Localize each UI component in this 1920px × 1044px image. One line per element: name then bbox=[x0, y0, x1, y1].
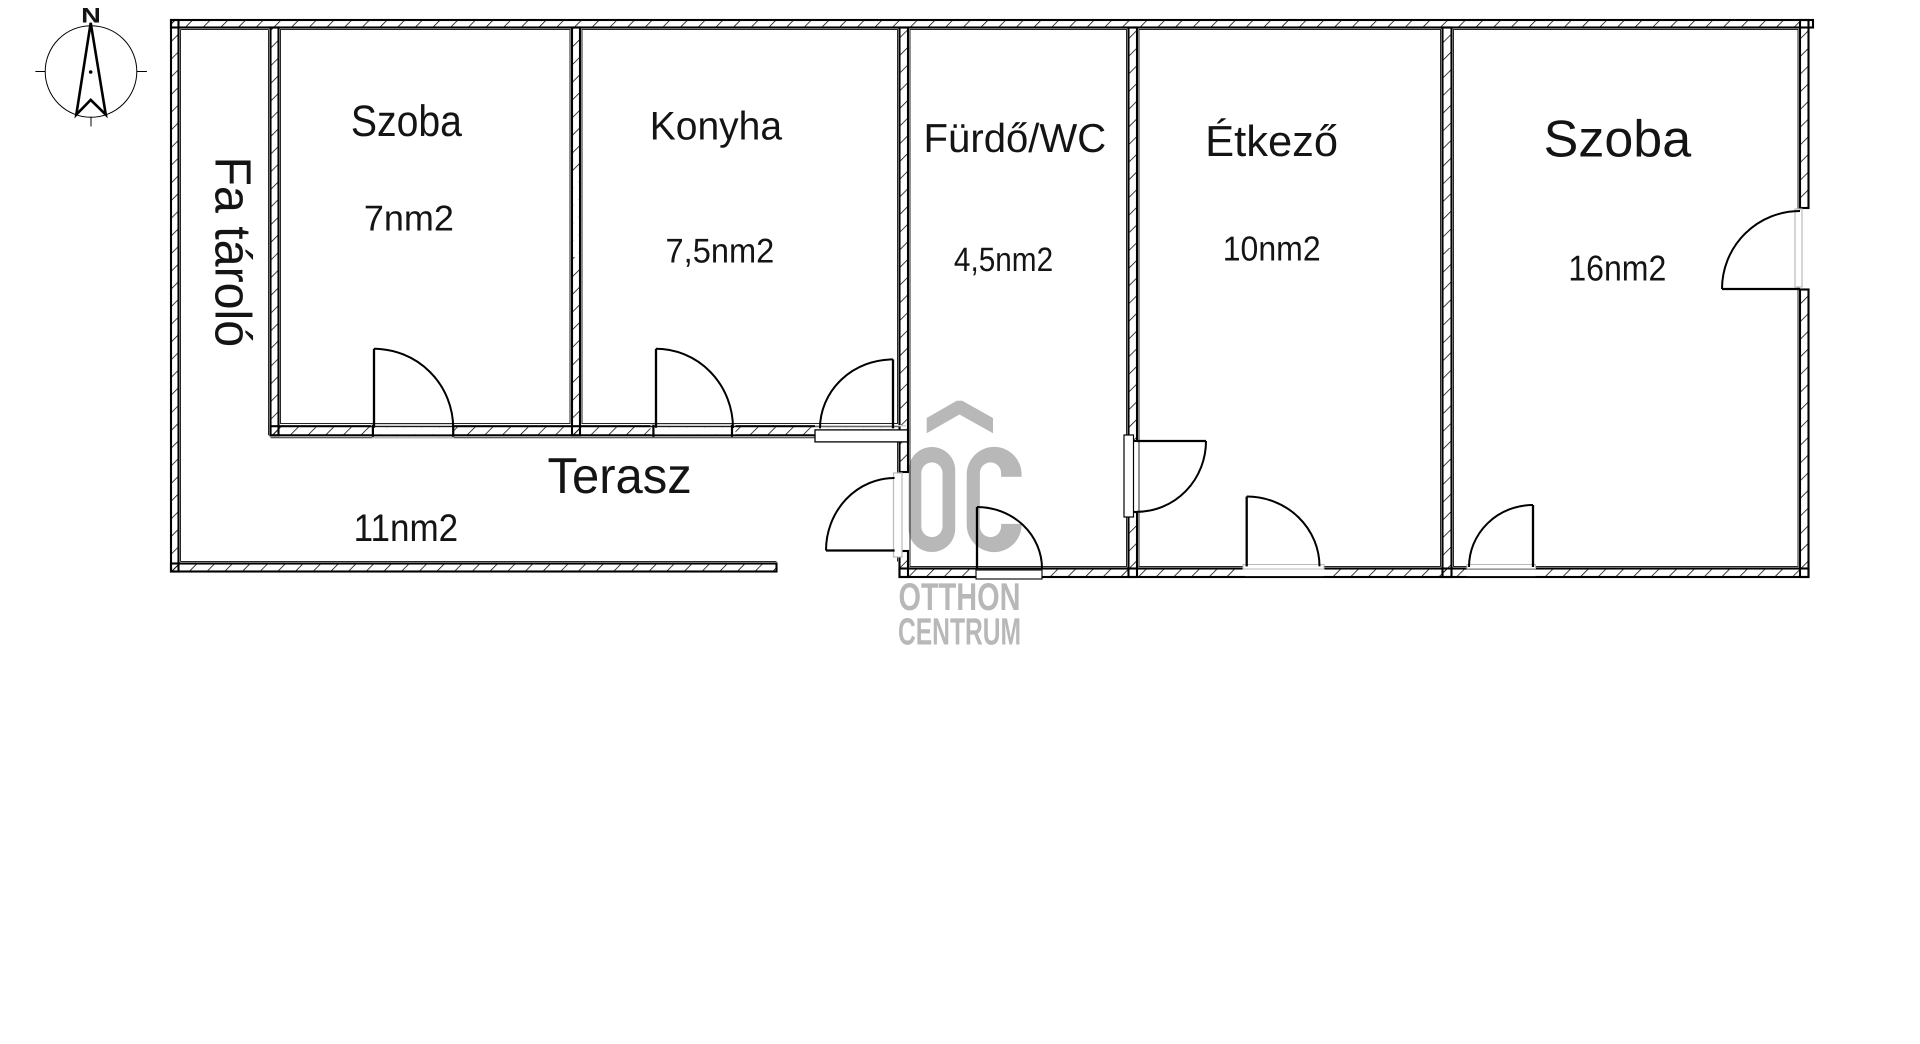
svg-text:16nm2: 16nm2 bbox=[1568, 248, 1666, 289]
svg-text:7,5nm2: 7,5nm2 bbox=[666, 232, 775, 270]
svg-text:Fa tároló: Fa tároló bbox=[205, 157, 262, 348]
svg-text:Szoba: Szoba bbox=[351, 97, 463, 146]
svg-text:7nm2: 7nm2 bbox=[364, 198, 454, 239]
svg-text:Szoba: Szoba bbox=[1544, 110, 1692, 168]
svg-text:Étkező: Étkező bbox=[1205, 118, 1338, 166]
svg-text:Terasz: Terasz bbox=[547, 447, 691, 504]
svg-text:Konyha: Konyha bbox=[650, 104, 783, 148]
svg-text:4,5nm2: 4,5nm2 bbox=[954, 241, 1053, 279]
svg-text:Fürdő/WC: Fürdő/WC bbox=[924, 115, 1107, 161]
svg-text:11nm2: 11nm2 bbox=[354, 507, 459, 550]
svg-text:10nm2: 10nm2 bbox=[1223, 229, 1321, 268]
svg-text:CENTRUM: CENTRUM bbox=[898, 612, 1021, 654]
svg-text:N: N bbox=[81, 5, 101, 28]
